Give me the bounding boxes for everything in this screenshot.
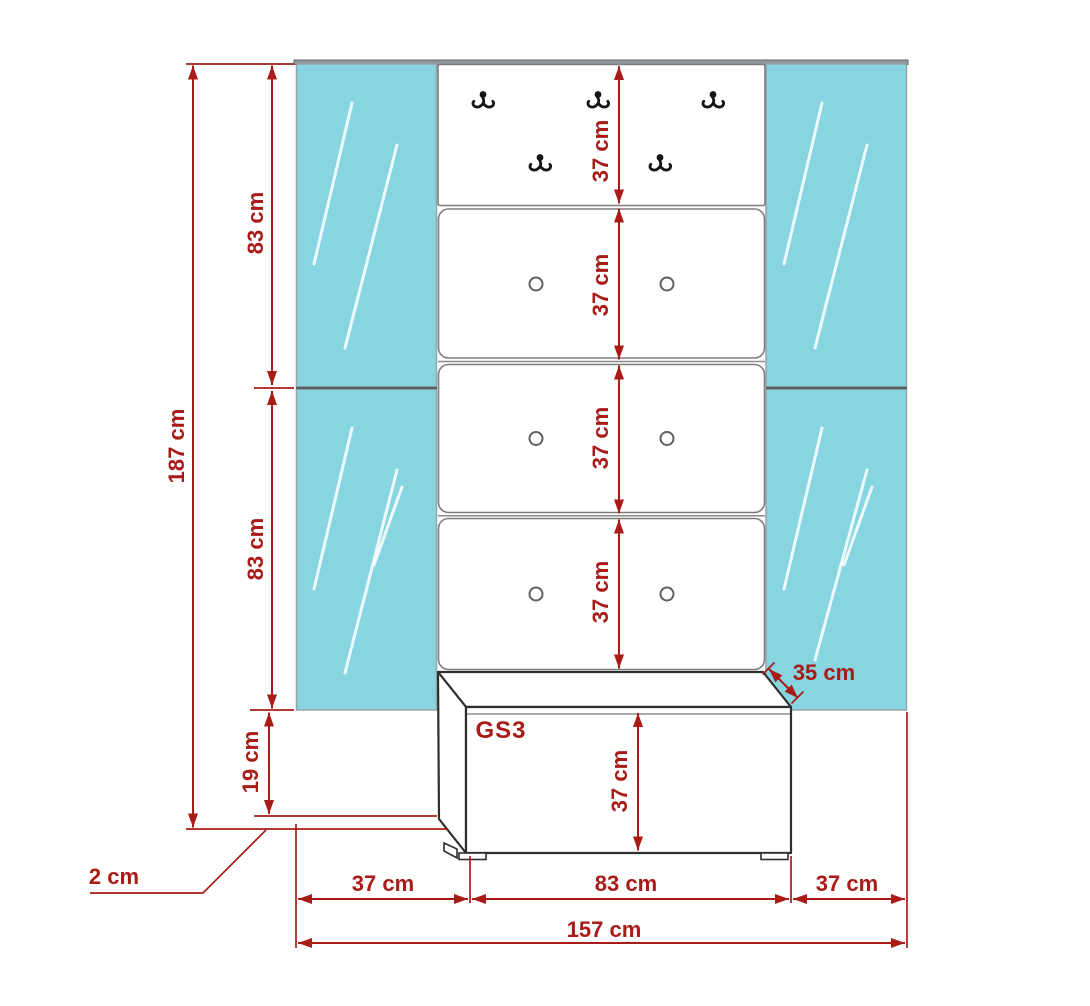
- bench-foot: [761, 853, 788, 860]
- dim-label-bench-depth: 35 cm: [793, 662, 855, 684]
- knob-icon: [530, 278, 543, 291]
- dim-label-bench-height: 37 cm: [609, 750, 631, 812]
- dim-label-cabinet2-height: 37 cm: [590, 407, 612, 469]
- left-mirror-upper: [297, 64, 437, 387]
- knob-icon: [530, 432, 543, 445]
- dim-label-total-width: 157 cm: [567, 919, 642, 941]
- knob-icon: [661, 588, 674, 601]
- dim-label-upper-mirror-height: 83 cm: [245, 192, 267, 254]
- dim-label-hook-panel-height: 37 cm: [590, 120, 612, 182]
- knob-icon: [661, 432, 674, 445]
- furniture-dimension-diagram: 187 cm 83 cm 83 cm 19 cm 2 cm 37 cm 37 c…: [0, 0, 1090, 1006]
- right-mirror-upper: [766, 64, 907, 387]
- bench-top: [438, 672, 791, 707]
- knob-icon: [661, 278, 674, 291]
- dim-label-left-width: 37 cm: [352, 873, 414, 895]
- diagram-drawing: [0, 0, 1090, 1006]
- left-mirror-lower: [297, 389, 437, 710]
- dim-label-total-height: 187 cm: [166, 409, 188, 484]
- dim-label-center-width: 83 cm: [595, 873, 657, 895]
- dim-label-cabinet1-height: 37 cm: [590, 254, 612, 316]
- dim-label-lower-mirror-height: 83 cm: [245, 518, 267, 580]
- dim-label-right-width: 37 cm: [816, 873, 878, 895]
- model-label: GS3: [475, 719, 526, 743]
- knob-icon: [530, 588, 543, 601]
- dim-label-base-gap-height: 19 cm: [240, 731, 262, 793]
- dim-label-foot-height: 2 cm: [89, 866, 139, 888]
- dim-label-cabinet3-height: 37 cm: [590, 561, 612, 623]
- bench-foot: [459, 853, 486, 860]
- bench-foot: [444, 843, 457, 858]
